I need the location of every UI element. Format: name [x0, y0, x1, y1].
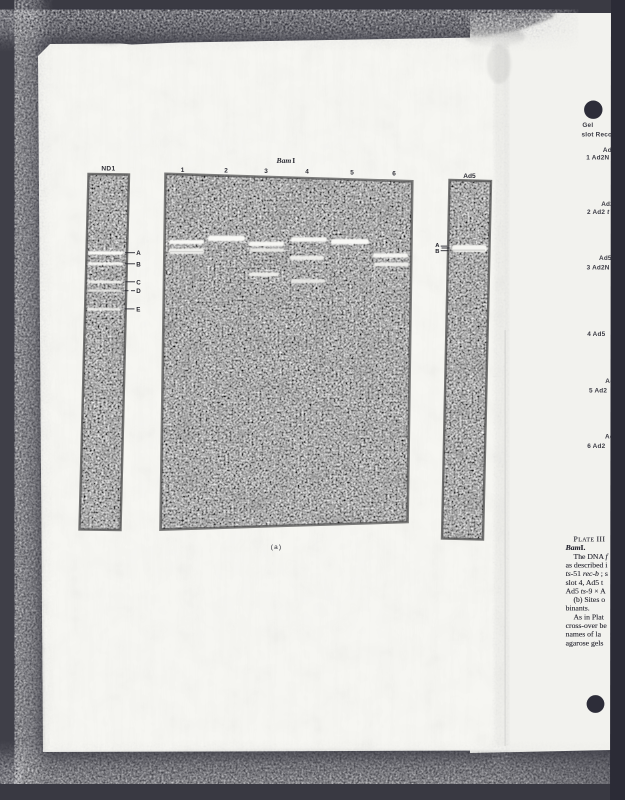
svg-text:ND1: ND1 — [101, 165, 115, 172]
svg-text:3: 3 — [264, 168, 268, 175]
svg-text:D: D — [136, 288, 141, 295]
svg-text:C: C — [136, 279, 141, 286]
svg-text:(a): (a) — [270, 544, 282, 551]
svg-text:3 Ad2N: 3 Ad2N — [587, 265, 610, 272]
svg-text:Ad5 ts-9 × A: Ad5 ts-9 × A — [566, 586, 606, 595]
svg-text:1: 1 — [181, 167, 185, 174]
svg-text:Gel: Gel — [582, 122, 593, 129]
svg-text:2 Ad2 t: 2 Ad2 t — [587, 209, 610, 216]
svg-text:6 Ad2: 6 Ad2 — [587, 443, 605, 450]
svg-text:ts-51 rec-b ; s: ts-51 rec-b ; s — [566, 569, 608, 578]
svg-text:BamI: BamI — [276, 156, 296, 165]
svg-text:A: A — [136, 250, 141, 257]
svg-text:5 Ad2: 5 Ad2 — [589, 388, 607, 395]
svg-text:binants.: binants. — [566, 604, 590, 613]
svg-text:5: 5 — [350, 169, 354, 176]
svg-text:B: B — [435, 249, 439, 255]
svg-text:The DNA f: The DNA f — [574, 552, 610, 561]
svg-text:6: 6 — [392, 170, 396, 177]
svg-text:cross-over be: cross-over be — [566, 621, 608, 630]
svg-text:agarose gels: agarose gels — [566, 638, 604, 647]
svg-text:Ad5: Ad5 — [599, 255, 612, 262]
svg-text:1 Ad2N: 1 Ad2N — [586, 154, 609, 161]
svg-text:Ad5: Ad5 — [463, 173, 476, 180]
svg-text:4 Ad5: 4 Ad5 — [587, 331, 605, 338]
svg-text:4: 4 — [305, 169, 309, 176]
svg-text:2: 2 — [224, 167, 228, 174]
svg-text:E: E — [136, 307, 140, 314]
svg-text:B: B — [136, 262, 141, 269]
